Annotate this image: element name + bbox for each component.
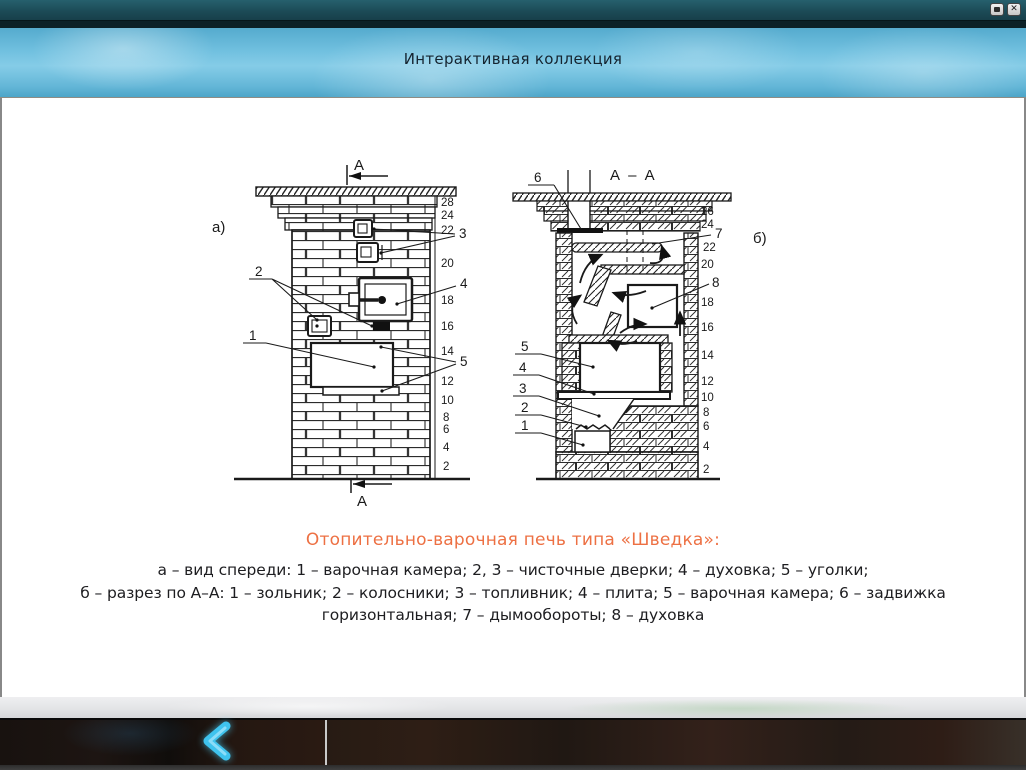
svg-text:12: 12 bbox=[441, 376, 454, 388]
content-area: А А bbox=[0, 98, 1026, 697]
base-masonry bbox=[556, 452, 698, 479]
svg-text:8: 8 bbox=[443, 412, 449, 424]
top-plate bbox=[256, 187, 456, 196]
figure-caption: Отопительно-варочная печь типа «Шведка»:… bbox=[0, 530, 1026, 627]
svg-text:18: 18 bbox=[701, 297, 714, 309]
toolbar-left-panel bbox=[0, 720, 325, 765]
part-label-4: 4 bbox=[460, 276, 468, 291]
minimize-icon bbox=[994, 7, 1000, 12]
svg-text:26: 26 bbox=[701, 206, 714, 218]
section-letter-bottom: А bbox=[357, 493, 367, 510]
section-arrow-bottom bbox=[353, 480, 365, 488]
left-window-edge bbox=[0, 98, 2, 718]
cooking-chamber-opening bbox=[311, 343, 393, 387]
caption-line-2: б – разрез по А–А: 1 – зольник; 2 – коло… bbox=[32, 582, 994, 627]
window-controls: ✕ bbox=[990, 3, 1021, 16]
toolbar-bottom-strip bbox=[0, 765, 1026, 770]
part-label-5: 5 bbox=[460, 354, 468, 369]
page-title: Интерактивная коллекция bbox=[0, 50, 1026, 68]
svg-text:10: 10 bbox=[441, 395, 454, 407]
part-label-3b: 3 bbox=[519, 381, 527, 396]
ash-pit bbox=[575, 431, 610, 452]
part-label-8: 8 bbox=[712, 275, 720, 290]
view-label-b: б) bbox=[753, 230, 767, 247]
part-label-2b: 2 bbox=[521, 400, 529, 415]
right-wall bbox=[684, 233, 698, 406]
svg-text:12: 12 bbox=[701, 376, 714, 388]
svg-text:16: 16 bbox=[441, 321, 454, 333]
part-label-2: 2 bbox=[255, 264, 263, 279]
section-letter-top: А bbox=[354, 157, 364, 174]
cleanout-slot bbox=[373, 322, 390, 331]
stove-diagram: А А bbox=[0, 150, 1026, 510]
svg-text:2: 2 bbox=[703, 464, 709, 476]
svg-text:20: 20 bbox=[441, 258, 454, 270]
damper-slide bbox=[557, 228, 603, 233]
svg-text:28: 28 bbox=[441, 197, 454, 209]
oven-box bbox=[628, 285, 677, 327]
view-label-a: а) bbox=[212, 219, 225, 236]
caption-title: Отопительно-варочная печь типа «Шведка»: bbox=[0, 530, 1026, 550]
svg-text:8: 8 bbox=[703, 407, 709, 419]
minimize-button[interactable] bbox=[990, 3, 1004, 16]
chevron-left-icon bbox=[195, 721, 239, 761]
section-title: А – А bbox=[610, 167, 657, 184]
part-label-1: 1 bbox=[249, 328, 257, 343]
back-button[interactable] bbox=[192, 721, 242, 764]
bottom-toolbar bbox=[0, 718, 1026, 770]
cook-plate bbox=[558, 392, 670, 399]
svg-text:16: 16 bbox=[701, 322, 714, 334]
svg-text:22: 22 bbox=[441, 225, 454, 237]
svg-text:20: 20 bbox=[701, 259, 714, 271]
svg-text:22: 22 bbox=[703, 242, 716, 254]
svg-text:6: 6 bbox=[443, 424, 449, 436]
part-label-6: 6 bbox=[534, 170, 542, 185]
svg-text:14: 14 bbox=[441, 346, 454, 358]
application-window: ✕ Интерактивная коллекция bbox=[0, 0, 1026, 770]
svg-text:24: 24 bbox=[701, 219, 714, 231]
part-label-5b: 5 bbox=[521, 339, 529, 354]
part-label-1b: 1 bbox=[521, 418, 529, 433]
svg-text:2: 2 bbox=[443, 461, 449, 473]
ceiling-plate bbox=[513, 193, 731, 201]
title-bar: ✕ bbox=[0, 0, 1026, 21]
caption-line-1: а – вид спереди: 1 – варочная камера; 2,… bbox=[32, 559, 994, 582]
close-icon: ✕ bbox=[1010, 5, 1018, 14]
part-label-7: 7 bbox=[715, 226, 723, 241]
part-label-4b: 4 bbox=[519, 360, 527, 375]
figure-section-view: А – А bbox=[513, 167, 767, 479]
svg-text:18: 18 bbox=[441, 295, 454, 307]
titlebar-shadow-strip bbox=[0, 21, 1026, 28]
part-label-3: 3 bbox=[459, 226, 467, 241]
svg-text:14: 14 bbox=[701, 350, 714, 362]
svg-text:4: 4 bbox=[443, 442, 450, 454]
app-header: Интерактивная коллекция bbox=[0, 28, 1026, 99]
course-numbers-right: 26 24 22 20 18 16 14 12 10 8 6 4 2 bbox=[701, 206, 716, 476]
close-button[interactable]: ✕ bbox=[1007, 3, 1021, 16]
figure-front-view: А А bbox=[212, 157, 470, 510]
backdrop-band bbox=[0, 697, 1026, 718]
toolbar-right-panel bbox=[327, 720, 1026, 765]
svg-text:24: 24 bbox=[441, 210, 454, 222]
svg-text:6: 6 bbox=[703, 421, 709, 433]
svg-text:10: 10 bbox=[701, 392, 714, 404]
svg-text:4: 4 bbox=[703, 441, 710, 453]
